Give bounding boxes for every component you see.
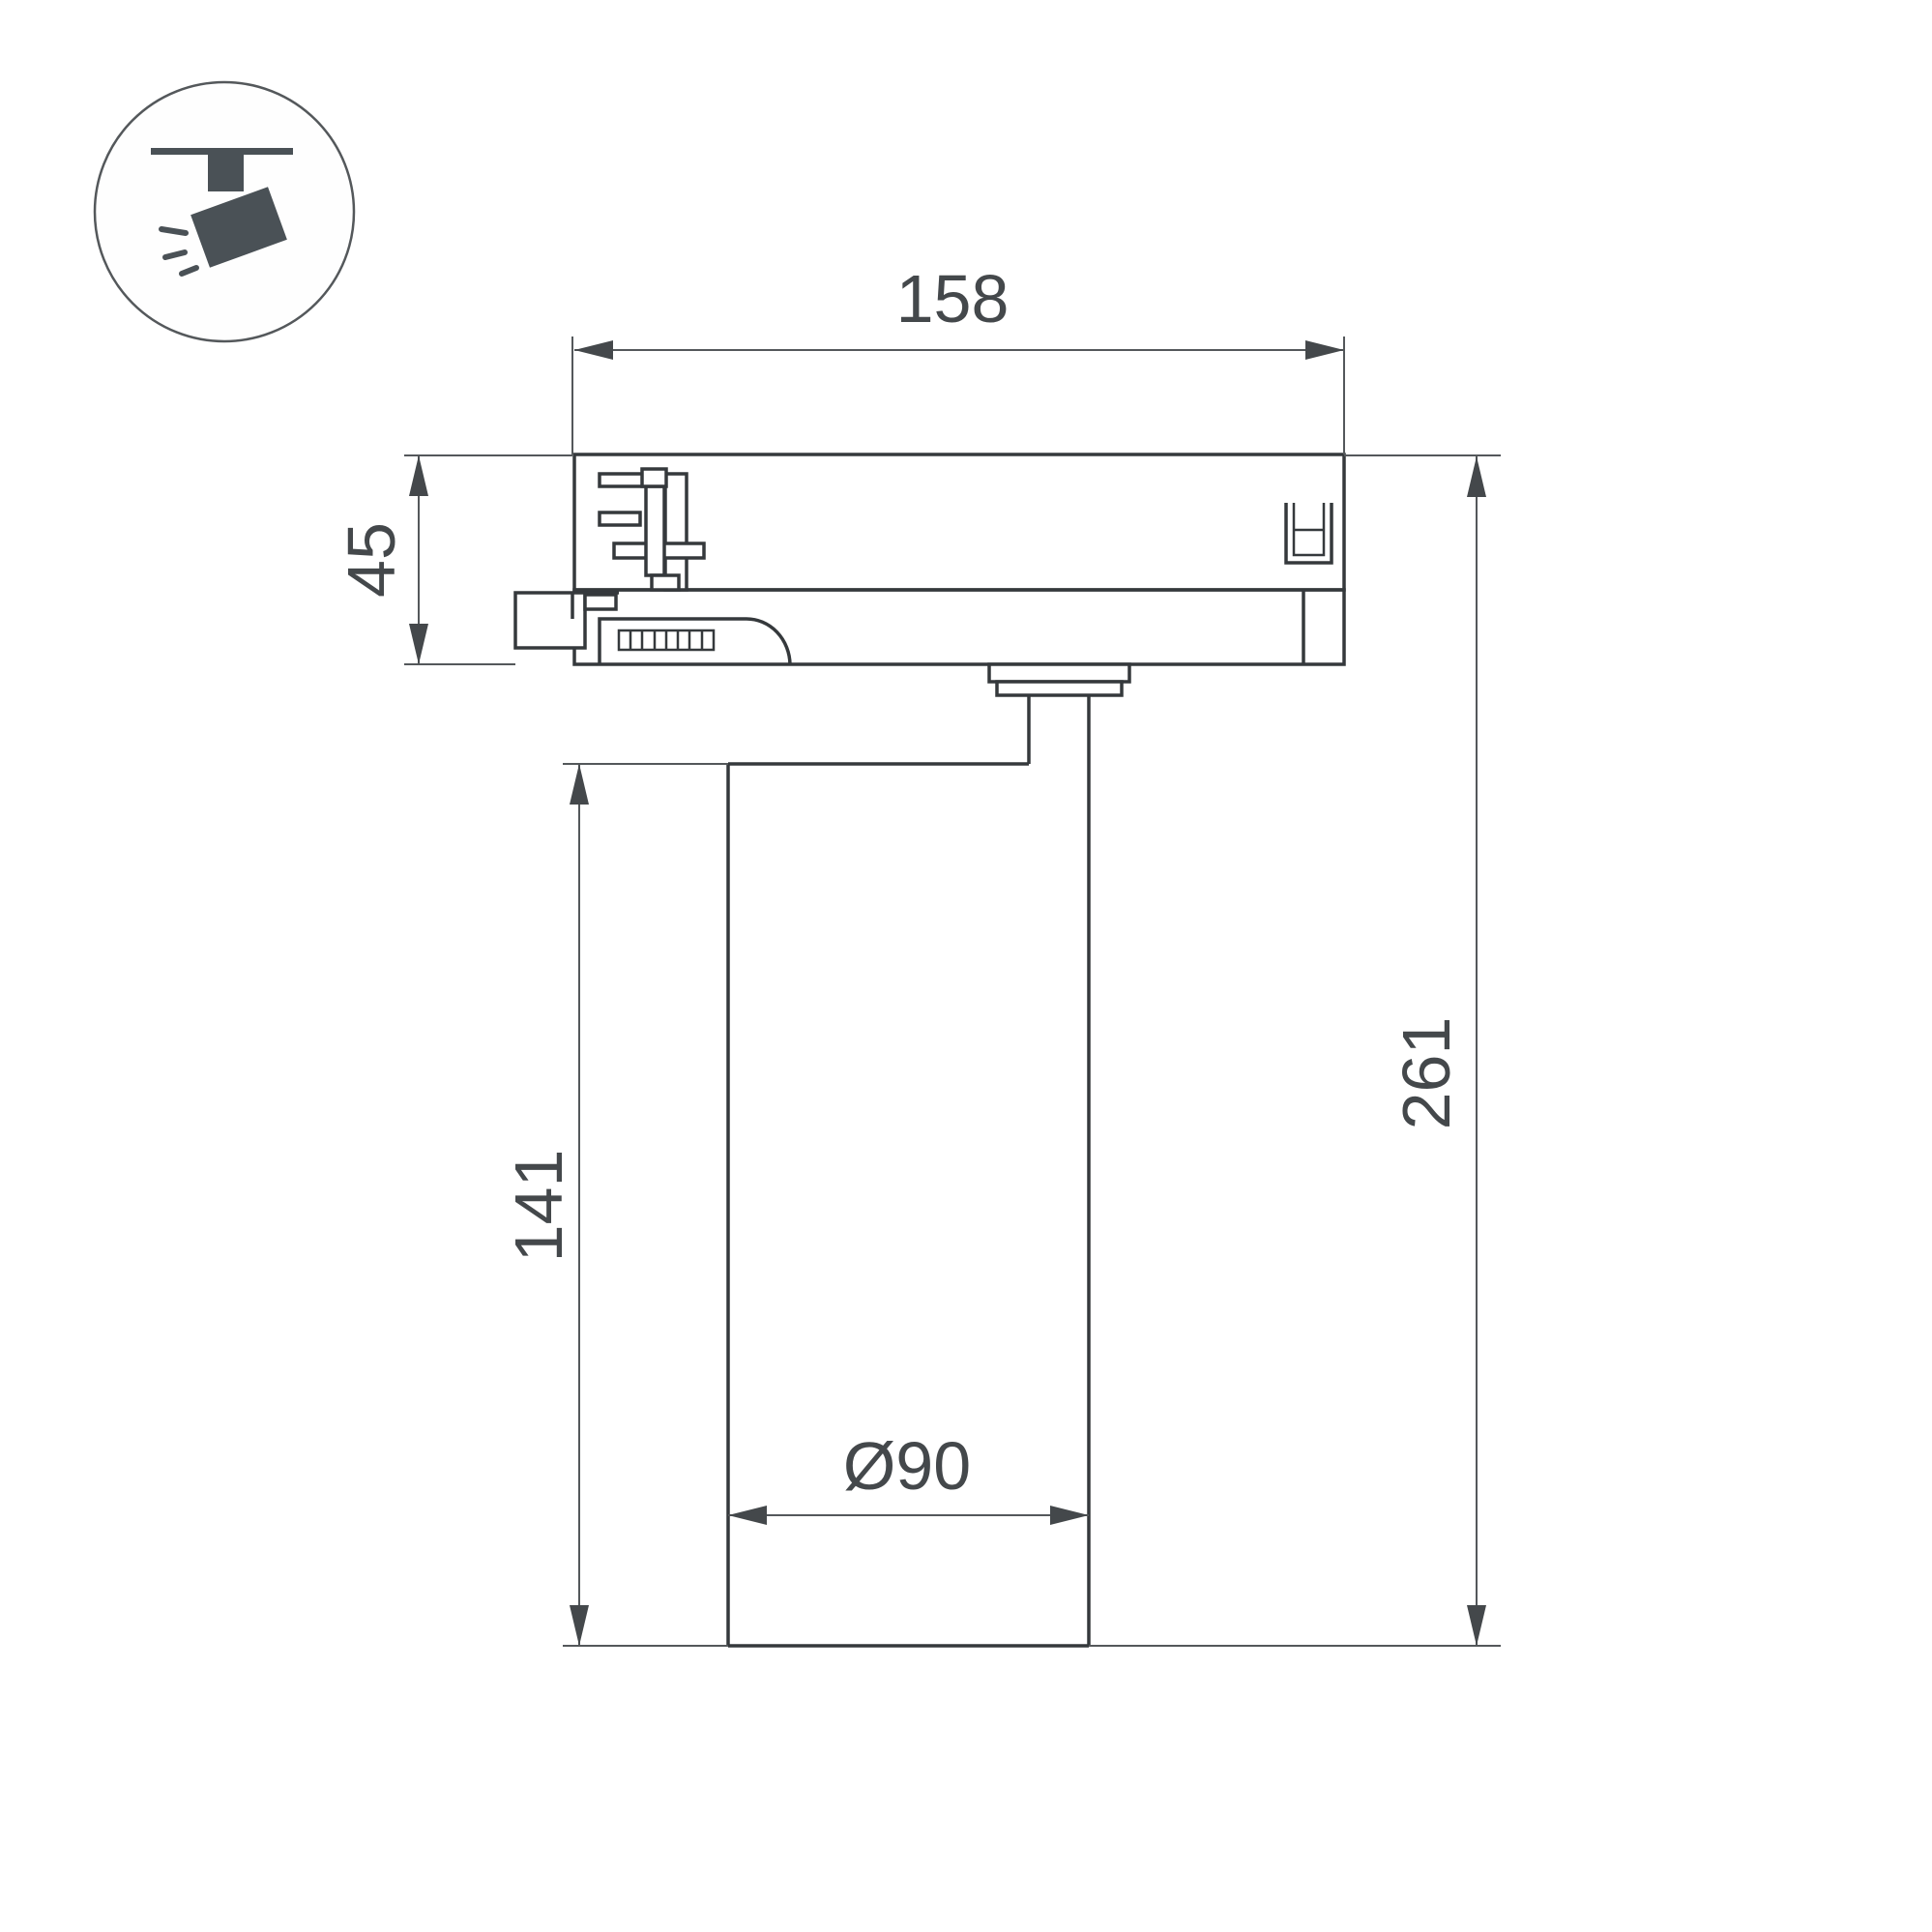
dim-diameter-label: Ø90	[843, 1428, 971, 1504]
track-adapter	[515, 454, 1344, 664]
drawing-canvas: 158 45 141 261	[0, 0, 1932, 1932]
dimension-body-height-141: 141	[501, 764, 728, 1646]
track-spotlight-icon	[95, 82, 354, 341]
contact-carriage	[600, 469, 704, 590]
dimension-total-height-261: 261	[1089, 455, 1501, 1646]
contact-pin-foot	[652, 575, 679, 590]
dimension-width-158: 158	[572, 261, 1344, 454]
end-clamp-bracket	[1286, 503, 1332, 563]
icon-track-stem	[208, 153, 244, 191]
boss-step-lower	[997, 682, 1122, 695]
latch-tongue	[585, 595, 616, 609]
dim-total-height-label: 261	[1389, 1017, 1464, 1130]
dim-body-height-label: 141	[501, 1150, 576, 1263]
technical-drawing: 158 45 141 261	[0, 0, 1932, 1932]
dimension-diameter-90: Ø90	[728, 1428, 1089, 1525]
contact-prong-middle	[600, 512, 640, 525]
contact-pin-cap	[642, 469, 666, 486]
dim-width-label: 158	[896, 261, 1010, 337]
slider-ribs	[630, 630, 702, 650]
adapter-upper-housing	[574, 454, 1344, 590]
latch-block	[515, 593, 585, 648]
contact-body	[665, 474, 687, 590]
contact-pin	[646, 486, 664, 575]
dim-adapter-height-label: 45	[334, 522, 409, 598]
slider-housing	[600, 619, 790, 664]
adapter-lower-housing	[574, 590, 1344, 664]
swivel-joint	[989, 664, 1129, 764]
boss-step-upper	[989, 664, 1129, 682]
